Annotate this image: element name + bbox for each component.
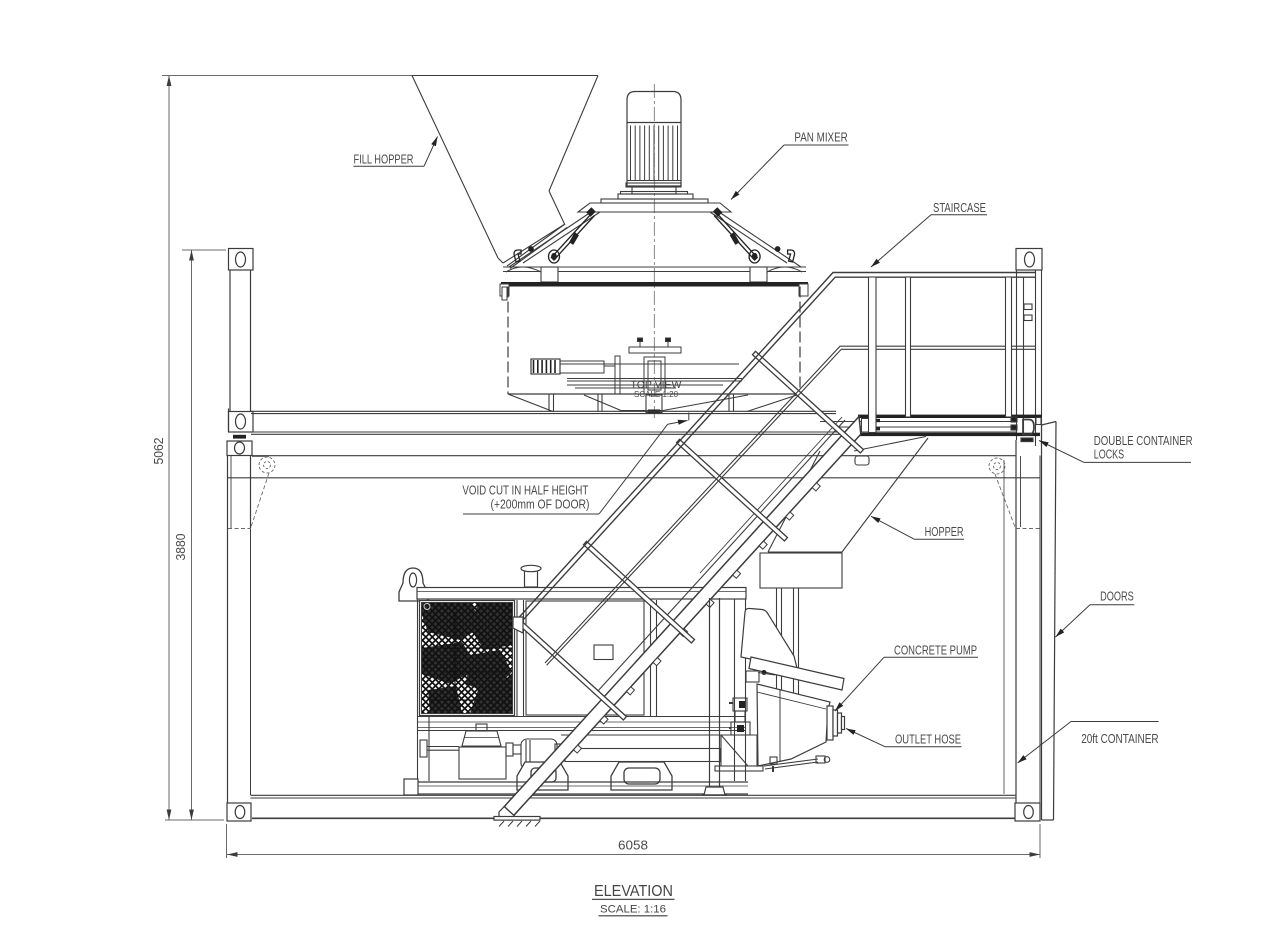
svg-text:STAIRCASE: STAIRCASE (933, 201, 986, 215)
svg-text:ELEVATION: ELEVATION (594, 883, 673, 900)
svg-text:DOUBLE CONTAINER: DOUBLE CONTAINER (1094, 434, 1193, 448)
svg-text:VOID CUT IN HALF HEIGHT: VOID CUT IN HALF HEIGHT (462, 484, 588, 498)
svg-text:6058: 6058 (618, 839, 648, 853)
svg-text:HOPPER: HOPPER (925, 525, 964, 539)
svg-text:20ft CONTAINER: 20ft CONTAINER (1081, 732, 1158, 746)
svg-text:DOORS: DOORS (1100, 590, 1134, 604)
svg-text:CONCRETE PUMP: CONCRETE PUMP (894, 643, 977, 657)
svg-text:(+200mm OF DOOR): (+200mm OF DOOR) (491, 498, 590, 512)
svg-text:OUTLET HOSE: OUTLET HOSE (895, 733, 961, 747)
svg-text:5062: 5062 (152, 437, 166, 464)
svg-text:LOCKS: LOCKS (1094, 448, 1125, 462)
svg-text:SCALE: 1:16: SCALE: 1:16 (600, 904, 666, 916)
svg-text:FILL HOPPER: FILL HOPPER (354, 153, 414, 167)
svg-text:3880: 3880 (174, 533, 188, 560)
svg-text:PAN MIXER: PAN MIXER (794, 131, 847, 145)
